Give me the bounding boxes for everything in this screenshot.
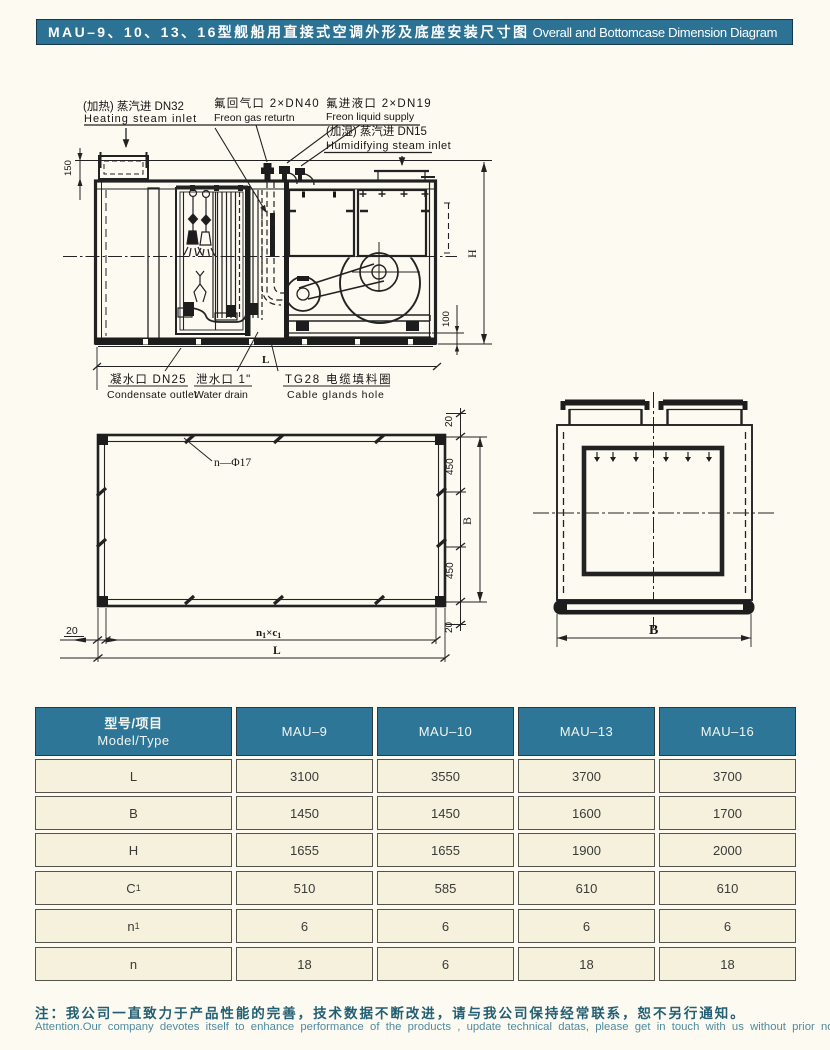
svg-text:L: L [262, 354, 269, 366]
svg-text:Heating steam inlet: Heating steam inlet [84, 113, 197, 125]
svg-text:B: B [460, 517, 474, 525]
svg-text:n—Φ17: n—Φ17 [214, 457, 251, 469]
svg-text:n1×c1: n1×c1 [256, 627, 281, 640]
svg-text:Freon liquid supply: Freon liquid supply [326, 111, 415, 123]
svg-text:150: 150 [63, 160, 74, 176]
svg-text:Freon gas returtn: Freon gas returtn [214, 112, 295, 124]
svg-text:Water drain: Water drain [194, 389, 248, 401]
svg-text:H: H [465, 249, 479, 258]
svg-text:TG28 电缆填料圈: TG28 电缆填料圈 [285, 372, 392, 386]
svg-text:L: L [273, 645, 281, 657]
svg-text:20: 20 [66, 625, 78, 637]
svg-text:450: 450 [445, 458, 456, 475]
svg-text:氟回气口 2×DN40: 氟回气口 2×DN40 [214, 96, 320, 110]
svg-text:100: 100 [441, 311, 452, 327]
svg-text:20: 20 [444, 415, 455, 427]
svg-text:20: 20 [444, 621, 455, 633]
svg-text:(加湿) 蒸汽进 DN15: (加湿) 蒸汽进 DN15 [326, 124, 427, 138]
svg-text:氟进液口 2×DN19: 氟进液口 2×DN19 [326, 96, 432, 110]
svg-text:凝水口 DN25: 凝水口 DN25 [110, 372, 187, 386]
svg-text:Condensate outlet: Condensate outlet [107, 389, 197, 401]
svg-text:泄水口 1": 泄水口 1" [196, 372, 251, 386]
svg-text:Cable glands hole: Cable glands hole [287, 389, 385, 401]
svg-text:B: B [649, 623, 658, 638]
svg-text:(加热) 蒸汽进 DN32: (加热) 蒸汽进 DN32 [83, 99, 184, 113]
svg-text:450: 450 [445, 562, 456, 579]
svg-text:Humidifying steam inlet: Humidifying steam inlet [326, 140, 451, 152]
